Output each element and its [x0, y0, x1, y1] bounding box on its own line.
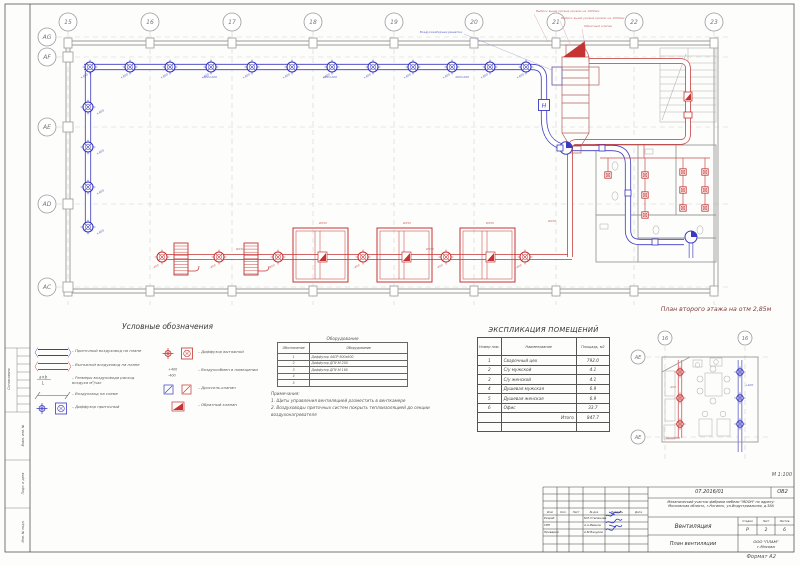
- legend-item-label: Диффузор приточный: [72, 402, 150, 410]
- ventilation-plan-canvas: 151617181920212223AGAFAEADAC1616AEAE: [0, 0, 800, 565]
- flow-callout: +400: [403, 72, 412, 79]
- duct-exhaust-icon: [34, 360, 72, 373]
- exhaust-diffuser: [439, 250, 454, 265]
- check-valve-icon: [318, 252, 327, 262]
- flow-callout: +400: [516, 72, 525, 79]
- flow-callout: +400: [282, 72, 291, 79]
- annotation-exhaust_note_2: Выброс выше уровня кровли на 1000мм: [561, 16, 625, 20]
- svg-text:AE: AE: [634, 435, 642, 441]
- equipment-header: Оборудование: [310, 343, 408, 354]
- supply-diffuser: [734, 366, 745, 377]
- flow-callout: +400: [96, 148, 105, 155]
- legend-item: Приточный воздуховод на плане: [34, 346, 150, 359]
- exhaust-diffuser-small: [642, 172, 648, 178]
- explication-header: Площадь, м2: [576, 338, 609, 356]
- svg-text:21: 21: [552, 19, 560, 26]
- size-callout-icon: a×bL: [34, 373, 72, 386]
- tb-role: Разраб: [544, 515, 582, 522]
- format-label: Формат А2: [690, 554, 776, 560]
- office-furniture: [664, 358, 730, 439]
- legend-item-label: Обратный клапан: [198, 400, 268, 408]
- svg-text:Н: Н: [542, 103, 547, 110]
- grid-column-bubble: 22: [625, 13, 643, 31]
- note-line: 2. Воздуховоды приточных систем покрыть …: [271, 404, 466, 411]
- grid-column-bubble: 20: [465, 13, 483, 31]
- doc-code: ОВ2: [771, 488, 794, 498]
- exhaust-equipment: Ø250Ø250Ø250: [174, 220, 515, 282]
- grid-column-bubble: 16: [141, 13, 159, 31]
- svg-text:18: 18: [309, 19, 317, 26]
- svg-text:-400: -400: [168, 374, 176, 378]
- svg-text:AG: AG: [42, 34, 52, 41]
- explication-table: Номер пом.НаименованиеПлощадь, м21Свароч…: [477, 337, 610, 432]
- exhaust-hood: Ø250: [293, 220, 348, 282]
- plan2-row-bubble: AE: [631, 430, 645, 444]
- exhaust-diffuser: [674, 366, 685, 377]
- annotation-supply_size: 400×200: [323, 75, 337, 79]
- diffuser-supply-icon: [34, 402, 72, 415]
- supply-diffuser: [204, 60, 219, 75]
- tb-stage-value: Р: [738, 526, 757, 535]
- flow-callout: +400: [480, 72, 489, 79]
- flow-callout: +400: [442, 72, 451, 79]
- tb-header-cell: Дата: [629, 509, 648, 516]
- supply-diffuser: [123, 60, 138, 75]
- supply-diffuser: [83, 60, 98, 75]
- legend-item: +400-400Воздухообмен в помещении: [160, 365, 268, 378]
- tb-role-name: А.А.Иванов: [584, 522, 628, 529]
- explication-row: 2С/у мужской4.1: [478, 365, 610, 375]
- svg-text:AE: AE: [634, 355, 642, 361]
- svg-text:AF: AF: [42, 54, 51, 61]
- duct-supply-icon: [34, 346, 72, 359]
- exhaust-diffuser: [674, 392, 685, 403]
- exhaust-diffuser-small: [680, 205, 686, 211]
- explication-row: 6Офис33.7: [478, 403, 610, 413]
- exhaust-diffuser: [356, 250, 371, 265]
- legend-title: Условные обозначения: [85, 322, 250, 331]
- section-title: Вентиляция: [648, 520, 738, 535]
- flow-callout: +400: [96, 228, 105, 235]
- legend-item-label: Воздуховод на схеме: [72, 389, 150, 397]
- tb-role: ГИП: [544, 522, 582, 529]
- grid-row-bubble: AC: [38, 278, 56, 296]
- drawing-sheet: 151617181920212223AGAFAEADAC1616AEAE: [0, 0, 800, 565]
- annotation-exhaust_note_1: Выброс выше уровня кровли на 1000мм: [536, 9, 600, 13]
- flow-callout: +400: [363, 72, 372, 79]
- svg-text:15: 15: [64, 19, 72, 26]
- tb-stage-header: Стадия: [738, 518, 757, 525]
- exhaust-diffuser: [518, 250, 533, 265]
- margin-stamp-label: Согласовано: [7, 350, 11, 408]
- flow-callout: -400: [353, 263, 361, 270]
- supply-diffuser: [519, 60, 534, 75]
- margin-stamp-label: Инв. № подл.: [21, 510, 25, 553]
- exhaust-diffuser: [155, 250, 170, 265]
- grid-column-bubble: 15: [59, 13, 77, 31]
- grid-column-bubble: 17: [223, 13, 241, 31]
- supply-diffuser: [81, 100, 96, 115]
- equipment-header: Обозначение: [278, 343, 310, 354]
- explication-row: 3С/у женской4.1: [478, 375, 610, 385]
- legend-item-label: Воздухообмен в помещении: [198, 365, 268, 373]
- annotation-exhaust_size: Ø250: [425, 246, 434, 251]
- svg-text:16: 16: [742, 336, 748, 342]
- sheet-title: План вентиляции: [648, 538, 738, 552]
- svg-text:Ø250: Ø250: [485, 220, 494, 225]
- legend-item-label: Дроссель-клапан: [198, 383, 268, 391]
- exhaust-diffuser-small: [642, 192, 648, 198]
- svg-text:16: 16: [146, 19, 154, 26]
- airflow-icon: +400-400: [160, 365, 198, 378]
- equipment-table: ОбозначениеОборудование1Диффузор 4АПР 60…: [277, 342, 408, 387]
- damper-icon: [625, 190, 631, 196]
- plan2-column-bubble: 16: [738, 331, 752, 345]
- damper-icon: [684, 112, 692, 118]
- explication-total-row: Итого847.7: [478, 413, 610, 423]
- explication-row: 5Душевая женская6.9: [478, 394, 610, 404]
- supply-diffuser: [734, 418, 745, 429]
- project-code: 07.2016/01: [648, 488, 771, 498]
- supply-diffuser: [366, 60, 381, 75]
- project-description: Механический участок фабрики мебели "МОО…: [650, 500, 792, 509]
- supply-diffuser: [325, 60, 340, 75]
- grid-row-bubble: AD: [38, 195, 56, 213]
- supply-diffuser: [483, 60, 498, 75]
- svg-text:Ø250: Ø250: [402, 220, 411, 225]
- svg-text:AD: AD: [42, 201, 52, 208]
- title-block: 07.2016/01 ОВ2 Механический участок фабр…: [543, 487, 794, 552]
- annotation-exhaust_flow: -400: [669, 385, 676, 389]
- plan2-title: План второго этажа на отм 2,85м: [640, 306, 792, 313]
- tb-stage-header: Листов: [775, 518, 794, 525]
- supply-diffuser: [406, 60, 421, 75]
- exhaust-diffuser-small: [702, 187, 708, 193]
- flow-callout: +400: [96, 108, 105, 115]
- annotation-intake: Воздухозаборная решетка: [420, 30, 462, 34]
- explication-row: 1Сварочный цех792.0: [478, 356, 610, 366]
- tb-role: Проверил: [544, 529, 582, 536]
- exhaust-fan-icon: [685, 231, 697, 243]
- tb-stage-value: 6: [775, 526, 794, 535]
- tb-stage-header: Лист: [757, 518, 775, 525]
- check-valve-icon: [684, 92, 692, 101]
- explication-block: ЭКСПЛИКАЦИЯ ПОМЕЩЕНИЙ Номер пом.Наименов…: [477, 326, 610, 432]
- flow-callout: -400: [209, 263, 217, 270]
- company-cell: ООО "ПЛАМ" г.Москва: [738, 537, 794, 549]
- annotation-check_valve: Обратный клапан: [584, 24, 612, 28]
- check-valve-icon: [402, 252, 411, 262]
- legend-item: Вытяжной воздуховод на плане: [34, 360, 150, 373]
- annotation-supply_flow: +400: [745, 383, 753, 387]
- supply-diffuser: [734, 392, 745, 403]
- annotation-exhaust_size: Ø250: [235, 246, 244, 251]
- notes-block: Примечания: 1. Щиты управления вентиляци…: [271, 390, 466, 418]
- tb-role-name: А.М.Вакуров: [584, 529, 628, 536]
- legend-item: Дроссель-клапан: [160, 383, 268, 396]
- flow-callout: +400: [96, 188, 105, 195]
- second-floor-plan: [662, 357, 758, 442]
- supply-diffuser: [81, 220, 96, 235]
- flow-callout: -400: [152, 263, 160, 270]
- damper-icon: [599, 145, 605, 151]
- svg-text:AC: AC: [42, 284, 52, 291]
- legend-item: Диффузор вытяжной: [160, 347, 268, 360]
- exhaust-diffuser-small: [702, 169, 708, 175]
- legend-item-label: Приточный воздуховод на плане: [72, 346, 150, 354]
- exhaust-diffuser-small: [680, 187, 686, 193]
- exhaust-diffuser: [271, 250, 286, 265]
- svg-text:19: 19: [390, 19, 398, 26]
- check-valve-icon: [160, 400, 198, 413]
- svg-text:16: 16: [662, 336, 668, 342]
- plan2-column-bubble: 16: [658, 331, 672, 345]
- scale-label: М 1:100: [744, 472, 792, 478]
- flow-callout: -400: [268, 263, 276, 270]
- grid-row-bubble: AG: [38, 28, 56, 46]
- exhaust-diffuser: [212, 250, 227, 265]
- svg-text:+400: +400: [168, 368, 177, 372]
- grid-column-bubble: 23: [705, 13, 723, 31]
- annotation-supply_size: 400×200: [203, 75, 217, 79]
- legend-item-label: Вытяжной воздуховод на плане: [72, 360, 150, 368]
- diffuser-exhaust-icon: [160, 347, 198, 360]
- supply-diffuser: [81, 140, 96, 155]
- svg-text:20: 20: [470, 19, 478, 26]
- legend-block: Условные обозначения Приточный воздухово…: [30, 322, 280, 434]
- flow-callout: +400: [160, 72, 169, 79]
- svg-text:17: 17: [228, 19, 236, 26]
- legend-item: Диффузор приточный: [34, 402, 150, 415]
- legend-item-label: Размеры воздуховода расход воздуха м³/ча…: [72, 373, 150, 385]
- grid-column-bubble: 19: [385, 13, 403, 31]
- damper-icon: [557, 145, 563, 151]
- exhaust-diffuser-small: [642, 212, 648, 218]
- supply-diffuser: [163, 60, 178, 75]
- margin-stamp-label: Взам. инв. №: [21, 414, 25, 457]
- note-line: воздухонагревателя: [271, 411, 466, 418]
- svg-text:23: 23: [710, 19, 718, 26]
- check-valve-icon: [486, 252, 495, 262]
- air-handling-unit: [552, 41, 599, 153]
- exhaust-diffuser: [674, 418, 685, 429]
- notes-title: Примечания:: [271, 390, 466, 397]
- grid-row-bubble: AE: [38, 118, 56, 136]
- equipment-row: 5: [278, 380, 408, 387]
- explication-header: Номер пом.: [478, 338, 502, 356]
- legend-item: a×bLРазмеры воздуховода расход воздуха м…: [34, 373, 150, 386]
- margin-stamp-label: Подп. и дата: [21, 462, 25, 505]
- grid-column-bubble: 18: [304, 13, 322, 31]
- damper-icon: [652, 239, 658, 245]
- exhaust-diffuser-small: [702, 205, 708, 211]
- flow-callout: -400: [515, 263, 523, 270]
- svg-text:L: L: [42, 381, 44, 386]
- explication-row: 4Душевая мужская6.9: [478, 384, 610, 394]
- flow-callout: +400: [120, 72, 129, 79]
- exhaust-diffuser-small: [680, 169, 686, 175]
- grid-row-bubble: AF: [38, 48, 56, 66]
- duct-scheme-icon: [34, 389, 72, 402]
- explication-empty-row: [478, 422, 610, 432]
- exhaust-diffuser-small: [605, 172, 611, 178]
- annotation-exhaust_size: Ø250: [547, 218, 556, 223]
- supply-diffuser: [285, 60, 300, 75]
- legend-item-label: Диффузор вытяжной: [198, 347, 268, 355]
- supply-diffuser: [245, 60, 260, 75]
- svg-text:a×b: a×b: [39, 375, 48, 380]
- flow-callout: -400: [436, 263, 444, 270]
- exhaust-hood: Ø250: [460, 220, 515, 282]
- tb-stage-value: 2: [757, 526, 775, 535]
- explication-title: ЭКСПЛИКАЦИЯ ПОМЕЩЕНИЙ: [477, 326, 610, 334]
- svg-text:Ø250: Ø250: [318, 220, 327, 225]
- annotation-supply_size: 400×200: [455, 75, 469, 79]
- note-line: 1. Щиты управления вентиляцией разместит…: [271, 397, 466, 404]
- damper-icon: [160, 383, 198, 396]
- legend-item: Воздуховод на схеме: [34, 389, 150, 402]
- plan2-row-bubble: AE: [631, 350, 645, 364]
- equipment-table-title: Оборудование: [277, 336, 408, 341]
- svg-text:22: 22: [630, 19, 638, 26]
- legend-item: Обратный клапан: [160, 400, 268, 413]
- svg-text:AE: AE: [42, 124, 51, 131]
- supply-diffuser: [81, 180, 96, 195]
- explication-header: Наименование: [501, 338, 576, 356]
- supply-diffuser: [445, 60, 460, 75]
- tb-role-name: М.Е.Степанова: [584, 515, 628, 522]
- equipment-table-block: Оборудование ОбозначениеОборудование1Диф…: [277, 336, 408, 387]
- flow-callout: +400: [242, 72, 251, 79]
- sheet-frame: [5, 4, 794, 552]
- exhaust-hood: Ø250: [377, 220, 432, 282]
